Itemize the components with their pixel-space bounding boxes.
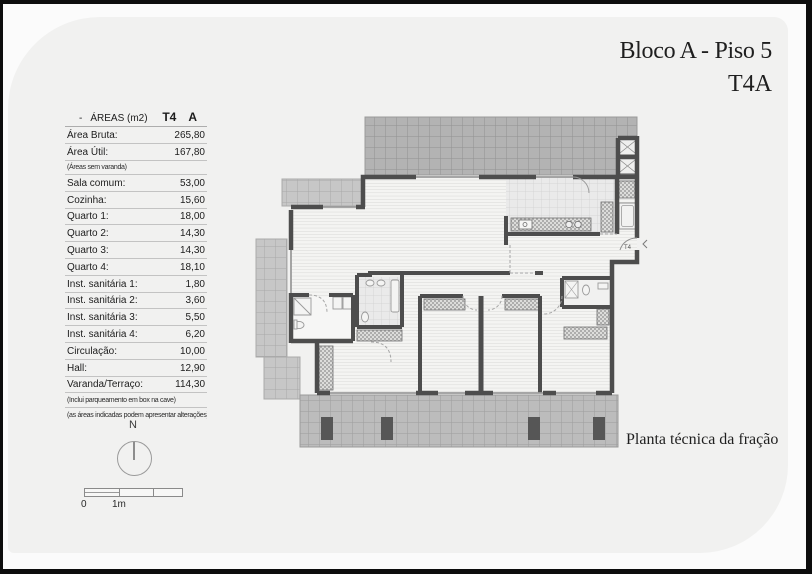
row-value: 6,20 — [186, 329, 205, 340]
scale-1m-label: 1m — [112, 499, 126, 510]
areas-table-row: Circulação:10,00 — [65, 343, 207, 360]
fridge — [619, 203, 636, 229]
row-value: 18,00 — [180, 211, 205, 222]
row-label: Varanda/Terraço: — [67, 379, 143, 390]
row-value: 53,00 — [180, 178, 205, 189]
areas-table-header: - ÁREAS (m2) T4 A — [65, 108, 207, 127]
row-value: 14,30 — [180, 228, 205, 239]
row-label: Cozinha: — [67, 195, 106, 206]
entrance-label: T4 — [624, 245, 632, 251]
areas-table-row: Hall:12,90 — [65, 360, 207, 377]
terrace-top — [365, 117, 637, 175]
terrace-upper-left — [282, 179, 363, 206]
compass-needle — [133, 442, 135, 460]
row-value: 5,50 — [186, 312, 205, 323]
areas-table-row: Varanda/Terraço:114,30 — [65, 377, 207, 394]
areas-table-row: Quarto 1:18,00 — [65, 209, 207, 226]
pantry-cabinet — [619, 181, 635, 198]
row-label: Quarto 4: — [67, 262, 109, 273]
floor-plan: T4 — [253, 103, 665, 455]
row-label: Quarto 3: — [67, 245, 109, 256]
header-block: A — [188, 110, 197, 124]
row-label: Área Bruta: — [67, 130, 118, 141]
areas-table-note: (Áreas sem varanda) — [65, 161, 207, 176]
areas-table-rows: Área Bruta:265,80Área Útil:167,80(Áreas … — [65, 127, 207, 422]
compass-north-label: N — [129, 419, 137, 431]
row-value: 265,80 — [174, 130, 205, 141]
terrace-pillar — [381, 417, 393, 440]
row-value: 3,60 — [186, 295, 205, 306]
areas-table-row: Cozinha:15,60 — [65, 192, 207, 209]
areas-table-row: Área Bruta:265,80 — [65, 127, 207, 144]
row-label: Quarto 2: — [67, 228, 109, 239]
row-label: Hall: — [67, 363, 87, 374]
areas-table-note: (Inclui parqueamento em box na cave) — [65, 393, 207, 408]
row-value: 167,80 — [174, 147, 205, 158]
row-label: Inst. sanitária 2: — [67, 295, 138, 306]
photo-frame: Bloco A - Piso 5 T4A - ÁREAS (m2) T4 A Á… — [0, 0, 812, 574]
entrance-marker — [643, 240, 647, 248]
header-type: T4 — [162, 110, 176, 124]
row-value: 14,30 — [180, 245, 205, 256]
areas-table-row: Inst. sanitária 1:1,80 — [65, 276, 207, 293]
scale-bar-body — [84, 488, 183, 497]
areas-table-row: Área Útil:167,80 — [65, 144, 207, 161]
areas-table-row: Sala comum:53,00 — [65, 175, 207, 192]
row-value: 18,10 — [180, 262, 205, 273]
terrace-pillar — [528, 417, 540, 440]
areas-table-row: Quarto 4:18,10 — [65, 259, 207, 276]
terrace-bottom — [300, 395, 618, 447]
row-label: Inst. sanitária 1: — [67, 279, 138, 290]
row-label: Sala comum: — [67, 178, 125, 189]
row-label: Inst. sanitária 3: — [67, 312, 138, 323]
areas-table-row: Inst. sanitária 2:3,60 — [65, 293, 207, 310]
areas-table-row: Quarto 3:14,30 — [65, 242, 207, 259]
terrace-pillar — [593, 417, 605, 440]
header-dash: - — [79, 113, 82, 124]
terrace-pillar — [321, 417, 333, 440]
row-label: Área Útil: — [67, 147, 108, 158]
page-subtitle: T4A — [619, 66, 772, 102]
row-value: 10,00 — [180, 346, 205, 357]
row-label: Circulação: — [67, 346, 117, 357]
areas-table-row: Inst. sanitária 3:5,50 — [65, 309, 207, 326]
row-label: Inst. sanitária 4: — [67, 329, 138, 340]
row-value: 1,80 — [186, 279, 205, 290]
areas-table-row: Quarto 2:14,30 — [65, 225, 207, 242]
scale-zero-label: 0 — [81, 499, 87, 510]
header-title: ÁREAS (m2) — [90, 113, 147, 124]
title-block: Bloco A - Piso 5 T4A — [619, 36, 772, 102]
page-title: Bloco A - Piso 5 — [619, 36, 772, 66]
areas-table: - ÁREAS (m2) T4 A Área Bruta:265,80Área … — [65, 108, 207, 422]
areas-table-row: Inst. sanitária 4:6,20 — [65, 326, 207, 343]
row-value: 114,30 — [175, 379, 205, 390]
row-label: Quarto 1: — [67, 211, 109, 222]
row-value: 12,90 — [180, 363, 205, 374]
row-value: 15,60 — [180, 195, 205, 206]
